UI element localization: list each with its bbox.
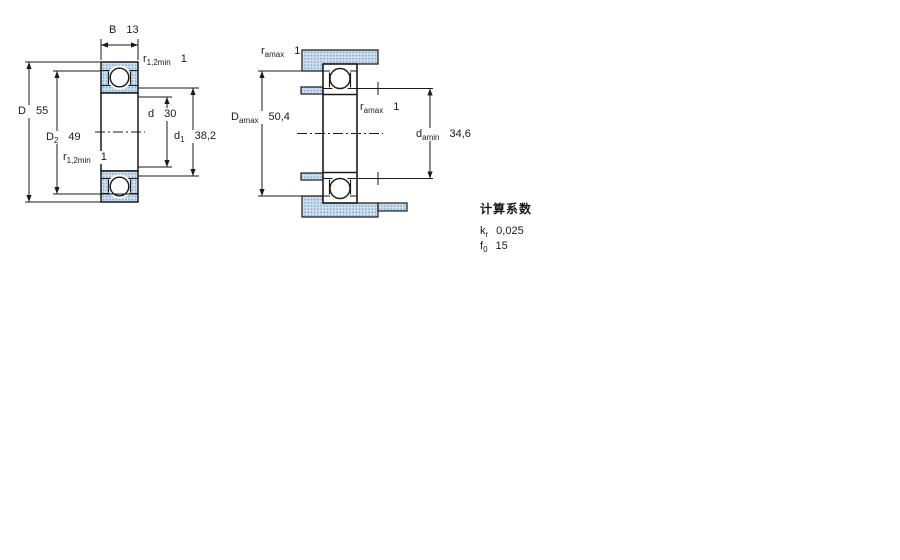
dim-label-d: d30 — [147, 108, 177, 121]
dim-label-r12min-bottom: r1,2min1 — [62, 151, 108, 164]
dim-label-ramax-top: ramax1 — [260, 45, 301, 58]
dim-value: 1 — [101, 151, 107, 163]
dim-value: 49 — [68, 131, 80, 143]
factor-subscript: r — [486, 230, 489, 239]
factor-f0: f015 — [480, 239, 532, 254]
shaft-shoulder-top — [301, 87, 323, 94]
factor-value: 15 — [496, 240, 508, 252]
dim-value: 34,6 — [449, 128, 470, 140]
dim-subscript: amin — [422, 133, 439, 142]
dim-subscript: 2 — [54, 136, 58, 145]
factor-value: 0,025 — [496, 225, 524, 237]
shaft-shoulder-bottom — [301, 173, 323, 180]
dim-symbol: D — [46, 131, 54, 143]
dim-subscript: 1 — [180, 135, 184, 144]
dim-value: 50,4 — [269, 111, 290, 123]
factor-subscript: 0 — [483, 245, 487, 254]
dim-value: 55 — [36, 105, 48, 117]
dim-subscript: amax — [239, 116, 259, 125]
dim-symbol: D — [231, 111, 239, 123]
dim-value: 1 — [294, 45, 300, 57]
bearing-drawing — [0, 0, 900, 560]
right-view-bearing-section — [297, 64, 383, 203]
dim-label-ramax-mid: ramax1 — [359, 101, 400, 114]
dim-value: 1 — [393, 101, 399, 113]
dim-label-r12min-top: r1,2min1 — [142, 53, 188, 66]
housing-bottom-strip — [378, 203, 407, 211]
dim-value: 13 — [126, 24, 138, 36]
factors-title: 计算系数 — [480, 200, 532, 217]
left-view-bearing-section — [95, 62, 145, 202]
factor-symbol: k — [480, 225, 486, 237]
dim-subscript: 1,2min — [67, 156, 91, 165]
calculation-factors: 计算系数 kr0,025 f015 — [480, 200, 532, 254]
dim-subscript: 1,2min — [147, 58, 171, 67]
dim-label-damin: damin34,6 — [415, 128, 472, 141]
dim-value: 38,2 — [195, 130, 216, 142]
dim-symbol: D — [18, 105, 26, 117]
factor-kr: kr0,025 — [480, 224, 532, 239]
dim-label-B: B13 — [108, 24, 140, 37]
dim-symbol: d — [148, 108, 154, 120]
dim-label-D: D55 — [17, 105, 49, 118]
dim-label-d1: d138,2 — [173, 130, 217, 143]
dim-label-D2: D249 — [45, 131, 82, 144]
dim-subscript: amax — [265, 50, 285, 59]
dim-label-Damax: Damax50,4 — [230, 111, 291, 124]
dim-value: 30 — [164, 108, 176, 120]
dim-symbol: B — [109, 24, 116, 36]
dim-subscript: amax — [364, 106, 384, 115]
drawing-canvas: B13 r1,2min1 D55 D249 r1,2min1 d30 d138,… — [0, 0, 900, 560]
dim-value: 1 — [181, 53, 187, 65]
